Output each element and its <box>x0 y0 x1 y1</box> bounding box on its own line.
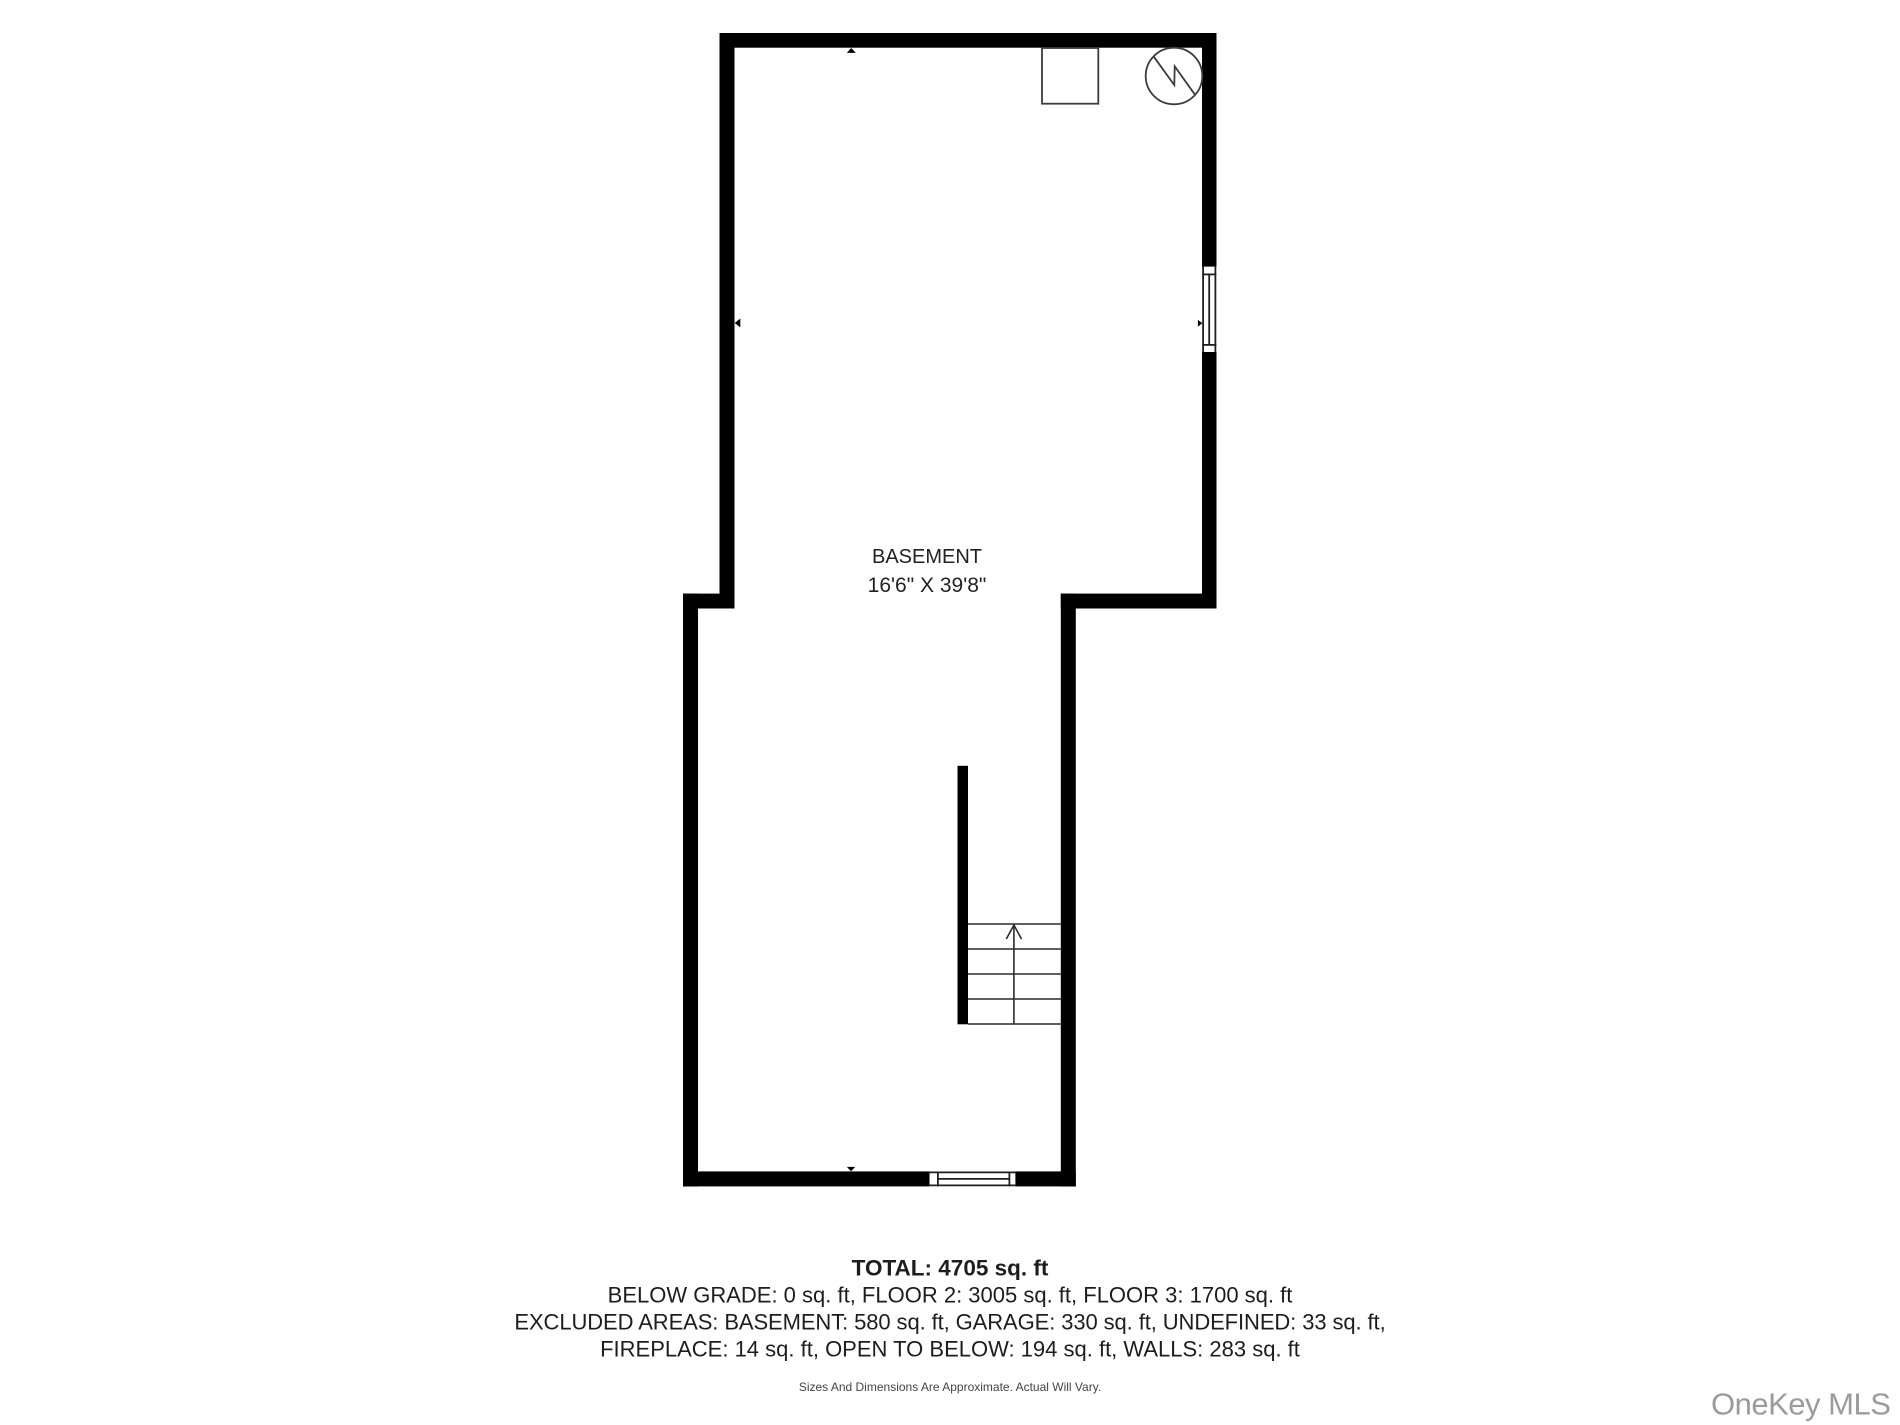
svg-text:BASEMENT: BASEMENT <box>872 546 982 568</box>
svg-text:Sizes And Dimensions Are Appro: Sizes And Dimensions Are Approximate. Ac… <box>799 1380 1101 1394</box>
svg-text:16'6" X 39'8": 16'6" X 39'8" <box>868 574 987 597</box>
svg-text:FIREPLACE: 14 sq. ft, OPEN TO: FIREPLACE: 14 sq. ft, OPEN TO BELOW: 194… <box>600 1337 1300 1362</box>
svg-text:EXCLUDED AREAS: BASEMENT: 580: EXCLUDED AREAS: BASEMENT: 580 sq. ft, GA… <box>514 1310 1385 1335</box>
svg-text:TOTAL: 4705 sq. ft: TOTAL: 4705 sq. ft <box>852 1256 1049 1281</box>
svg-text:BELOW GRADE: 0 sq. ft, FLOOR 2: BELOW GRADE: 0 sq. ft, FLOOR 2: 3005 sq.… <box>608 1283 1293 1308</box>
svg-text:OneKey MLS: OneKey MLS <box>1711 1387 1890 1422</box>
